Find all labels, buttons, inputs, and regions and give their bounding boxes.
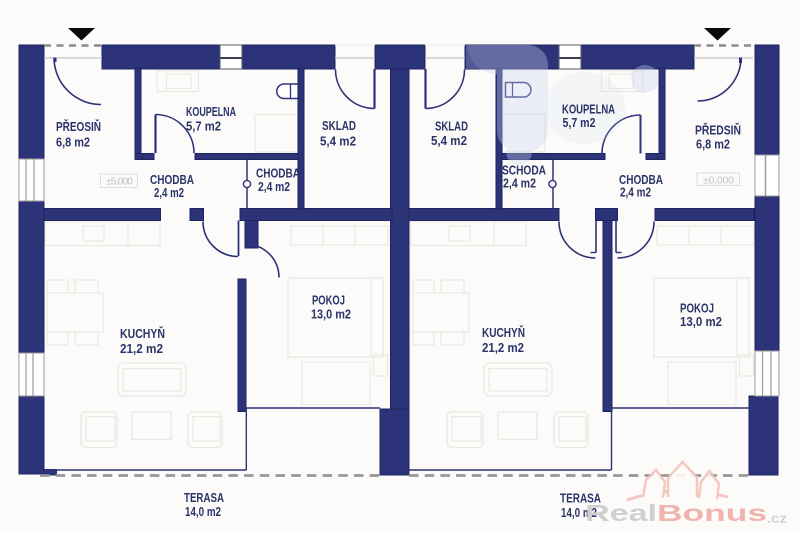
svg-text:SKLAD: SKLAD — [435, 119, 468, 134]
svg-text:14,0 m2: 14,0 m2 — [185, 504, 221, 519]
svg-text:±5,000: ±5,000 — [106, 176, 133, 188]
svg-text:PŘEOSIŇ: PŘEOSIŇ — [56, 119, 101, 134]
svg-text:2,4 m2: 2,4 m2 — [258, 179, 290, 194]
svg-text:TERASA: TERASA — [184, 490, 224, 505]
svg-text:5,4 m2: 5,4 m2 — [320, 134, 356, 149]
svg-text:2,4 m2: 2,4 m2 — [503, 176, 536, 191]
svg-text:2,4 m2: 2,4 m2 — [154, 185, 184, 200]
svg-text:5,4 m2: 5,4 m2 — [431, 133, 467, 148]
svg-text:KUCHYŇ: KUCHYŇ — [120, 326, 165, 341]
svg-text:13,0 m2: 13,0 m2 — [680, 314, 722, 329]
svg-text:13,0 m2: 13,0 m2 — [311, 307, 351, 322]
svg-text:KOUPELNA: KOUPELNA — [186, 104, 236, 119]
svg-text:POKOJ: POKOJ — [312, 293, 345, 308]
svg-text:Bonus: Bonus — [657, 500, 767, 526]
svg-text:PŘEDSIŇ: PŘEDSIŇ — [695, 123, 741, 138]
svg-text:SKLAD: SKLAD — [322, 118, 356, 133]
svg-text:KUCHYŇ: KUCHYŇ — [482, 325, 525, 340]
svg-text:5,7 m2: 5,7 m2 — [563, 115, 596, 130]
svg-text:.cz: .cz — [767, 510, 787, 526]
svg-text:21,2 m2: 21,2 m2 — [120, 341, 163, 356]
svg-text:6,8 m2: 6,8 m2 — [56, 135, 90, 150]
svg-text:21,2 m2: 21,2 m2 — [482, 340, 524, 355]
svg-text:Real: Real — [585, 500, 657, 526]
svg-text:6,8 m2: 6,8 m2 — [696, 137, 730, 152]
svg-text:2,4 m2: 2,4 m2 — [620, 185, 651, 200]
svg-text:±0,000: ±0,000 — [703, 175, 734, 187]
svg-text:5,7 m2: 5,7 m2 — [186, 119, 221, 134]
